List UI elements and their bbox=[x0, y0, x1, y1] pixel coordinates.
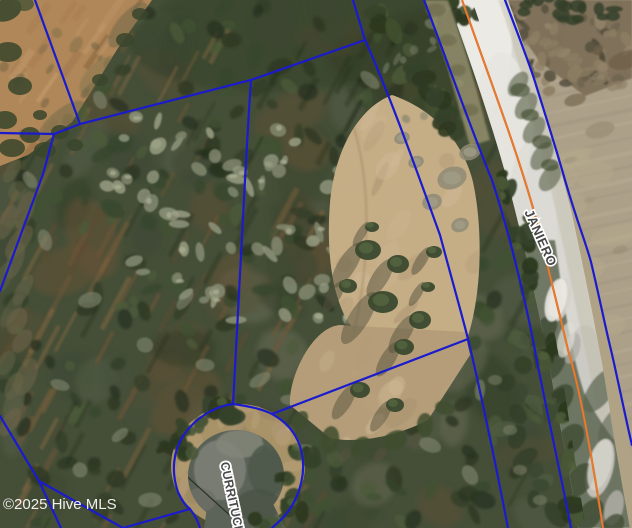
svg-text:©2025 Hive MLS: ©2025 Hive MLS bbox=[3, 496, 117, 513]
